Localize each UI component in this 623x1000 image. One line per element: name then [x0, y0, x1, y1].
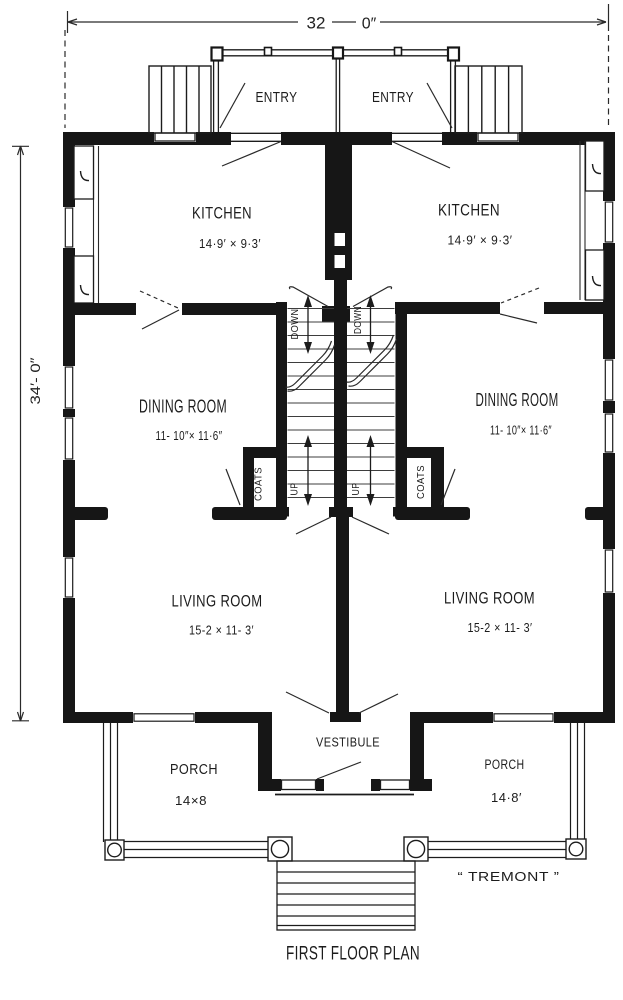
svg-text:DOWN: DOWN	[352, 306, 364, 334]
svg-text:LIVING ROOM: LIVING ROOM	[172, 592, 263, 611]
svg-text:COATS: COATS	[415, 465, 427, 499]
svg-text:PORCH: PORCH	[485, 757, 525, 772]
svg-text:11- 10″× 11·6″: 11- 10″× 11·6″	[490, 424, 552, 438]
svg-text:DINING ROOM: DINING ROOM	[476, 390, 559, 410]
svg-text:14×8: 14×8	[175, 794, 207, 808]
svg-text:15-2 × 11- 3′: 15-2 × 11- 3′	[468, 621, 533, 635]
svg-text:KITCHEN: KITCHEN	[192, 204, 252, 223]
svg-text:14·8′: 14·8′	[491, 791, 522, 805]
svg-text:UP: UP	[350, 483, 362, 496]
svg-text:KITCHEN: KITCHEN	[438, 201, 500, 220]
svg-text:PORCH: PORCH	[170, 762, 218, 778]
svg-text:ENTRY: ENTRY	[372, 89, 414, 106]
svg-text:15-2 × 11- 3′: 15-2 × 11- 3′	[189, 624, 254, 638]
svg-text:11- 10″× 11·6″: 11- 10″× 11·6″	[156, 429, 223, 443]
svg-text:0″: 0″	[362, 16, 377, 33]
svg-text:14·9′ × 9·3′: 14·9′ × 9·3′	[448, 234, 513, 248]
svg-text:FIRST FLOOR PLAN: FIRST FLOOR PLAN	[286, 944, 420, 965]
svg-text:COATS: COATS	[253, 467, 265, 501]
svg-text:VESTIBULE: VESTIBULE	[316, 735, 380, 750]
svg-text:UP: UP	[289, 483, 301, 496]
svg-text:32: 32	[307, 14, 326, 33]
svg-text:DOWN: DOWN	[289, 309, 301, 340]
svg-text:“ TREMONT ”: “ TREMONT ”	[458, 870, 560, 884]
svg-text:14·9′ × 9·3′: 14·9′ × 9·3′	[199, 237, 261, 251]
svg-text:LIVING ROOM: LIVING ROOM	[444, 589, 535, 608]
svg-text:DINING ROOM: DINING ROOM	[139, 397, 227, 417]
svg-text:ENTRY: ENTRY	[256, 89, 298, 106]
svg-text:34′- 0″: 34′- 0″	[28, 357, 43, 404]
